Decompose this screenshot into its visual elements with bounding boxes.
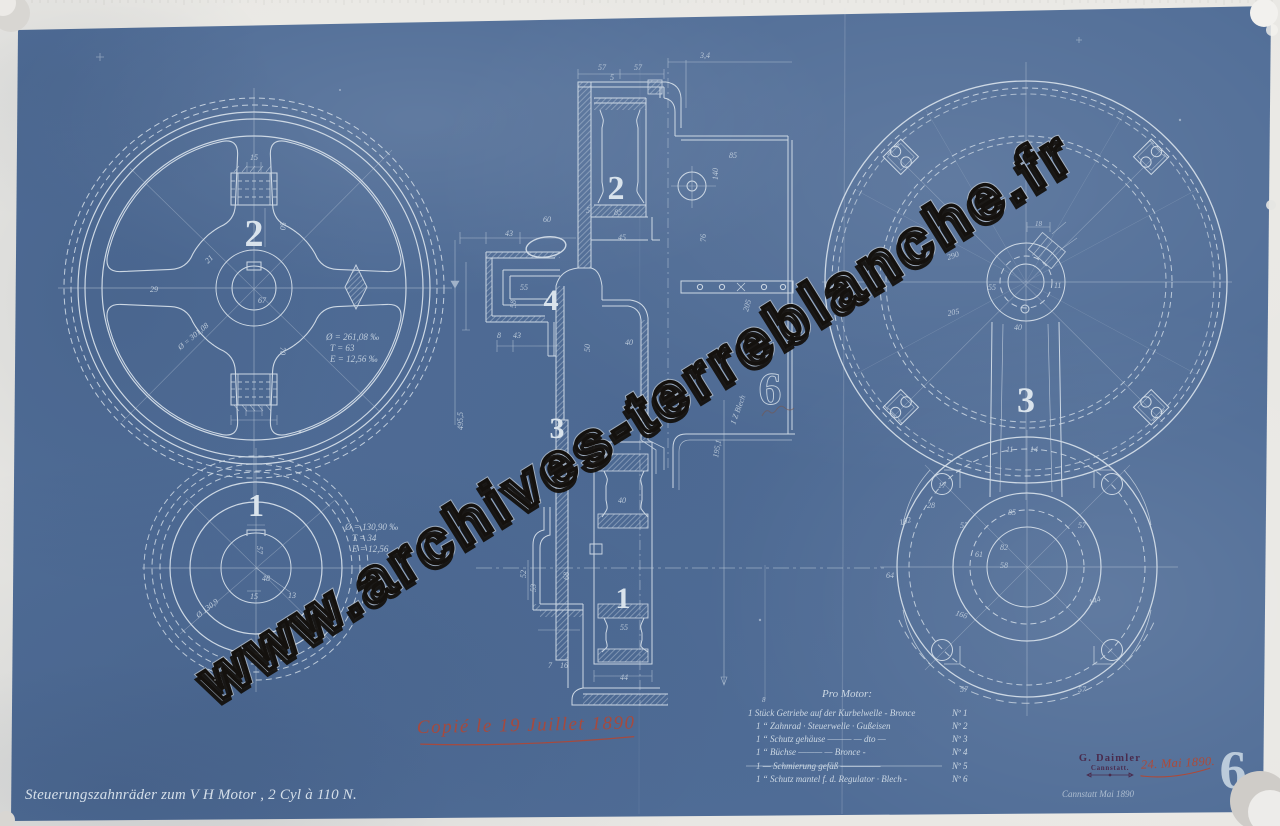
svg-text:40: 40 [618,496,626,505]
svg-text:61: 61 [975,550,983,559]
svg-text:3,4: 3,4 [699,51,710,60]
svg-text:18: 18 [1035,220,1043,228]
svg-text:2: 2 [608,170,625,207]
svg-text:68: 68 [562,572,571,580]
svg-text:55: 55 [988,283,996,292]
svg-text:53: 53 [529,584,538,592]
svg-text:57: 57 [598,63,607,72]
svg-text:85: 85 [1008,508,1016,517]
svg-text:55: 55 [620,623,628,632]
svg-text:58: 58 [1000,561,1008,570]
svg-text:85: 85 [729,151,737,160]
svg-text:57: 57 [1078,521,1087,530]
svg-text:2: 2 [245,213,264,255]
svg-text:Nº 5: Nº 5 [951,761,968,771]
svg-text:60: 60 [543,215,551,224]
svg-text:15: 15 [250,153,258,162]
svg-text:4: 4 [544,284,559,317]
svg-text:50: 50 [583,344,592,352]
svg-text:40: 40 [625,338,633,347]
svg-text:T = 34: T = 34 [352,533,377,543]
svg-text:495,5: 495,5 [456,412,465,430]
svg-text:58: 58 [509,300,518,308]
svg-text:52: 52 [519,570,528,578]
svg-text:1 “ Zahnrad · Steue: 1 “ Zahnrad · Steuerwelle · Gußeisen [756,721,891,731]
svg-text:17: 17 [938,481,947,490]
svg-text:E = 12,56 ‰: E = 12,56 ‰ [329,354,378,364]
svg-text:Nº 4: Nº 4 [951,747,968,757]
svg-text:5: 5 [586,206,590,215]
svg-text:29: 29 [150,285,158,294]
svg-text:1 “ Büchse ———: 1 “ Büchse ——— — Bronce - [756,747,866,757]
svg-text:57: 57 [634,63,643,72]
svg-text:50: 50 [278,222,287,230]
svg-text:Cannstatt Mai 1890: Cannstatt Mai 1890 [1062,789,1135,799]
svg-text:43: 43 [505,229,513,238]
svg-text:45: 45 [618,233,626,242]
svg-text:85: 85 [614,208,622,217]
svg-text:44: 44 [620,673,628,682]
svg-text:Ø = 261,08 ‰: Ø = 261,08 ‰ [325,332,379,342]
svg-text:5: 5 [610,73,614,82]
svg-text:64: 64 [886,571,894,580]
svg-text:Nº 6: Nº 6 [951,774,968,784]
svg-text:11: 11 [1054,281,1061,290]
svg-text:Nº 1: Nº 1 [951,708,968,718]
svg-text:Nº 3: Nº 3 [951,734,968,744]
svg-text:1 Stück Getriebe auf der Kurb: 1 Stück Getriebe auf der Kurbelwelle - B… [748,708,915,718]
svg-text:76: 76 [699,234,708,242]
svg-text:15: 15 [250,592,258,601]
svg-text:57: 57 [960,685,969,694]
svg-text:1 “ Schutz gehäuse ——: 1 “ Schutz gehäuse ——— — dto — [756,734,887,744]
svg-text:Nº 2: Nº 2 [951,721,968,731]
svg-text:Steuerungszahnräder zum V H: Steuerungszahnräder zum V H Motor , 2 Cy… [25,787,357,803]
svg-text:82: 82 [1000,543,1008,552]
svg-text:55: 55 [520,283,528,292]
svg-text:40: 40 [1014,323,1022,332]
svg-text:140: 140 [711,168,720,180]
svg-text:1 “ Schutz mantel f. d: 1 “ Schutz mantel f. d. Regulator · Blec… [756,774,907,784]
svg-text:57: 57 [255,546,264,555]
svg-text:48: 48 [262,574,270,583]
svg-text:Cannstatt.: Cannstatt. [1091,764,1129,772]
svg-text:57: 57 [960,521,969,530]
svg-text:16: 16 [560,661,568,670]
svg-text:43: 43 [513,331,521,340]
svg-text:Pro Motor:: Pro Motor: [821,688,872,700]
svg-text:57: 57 [1078,685,1087,694]
svg-text:70: 70 [278,347,287,355]
svg-text:67: 67 [258,296,267,305]
svg-text:28: 28 [927,501,935,510]
svg-text:T = 63: T = 63 [330,343,355,353]
svg-text:8: 8 [762,696,766,704]
svg-text:1: 1 [616,582,631,615]
svg-text:1: 1 [248,487,264,523]
svg-text:G. Daimler: G. Daimler [1079,753,1141,764]
svg-text:3: 3 [1017,380,1035,420]
svg-text:8: 8 [497,331,501,340]
